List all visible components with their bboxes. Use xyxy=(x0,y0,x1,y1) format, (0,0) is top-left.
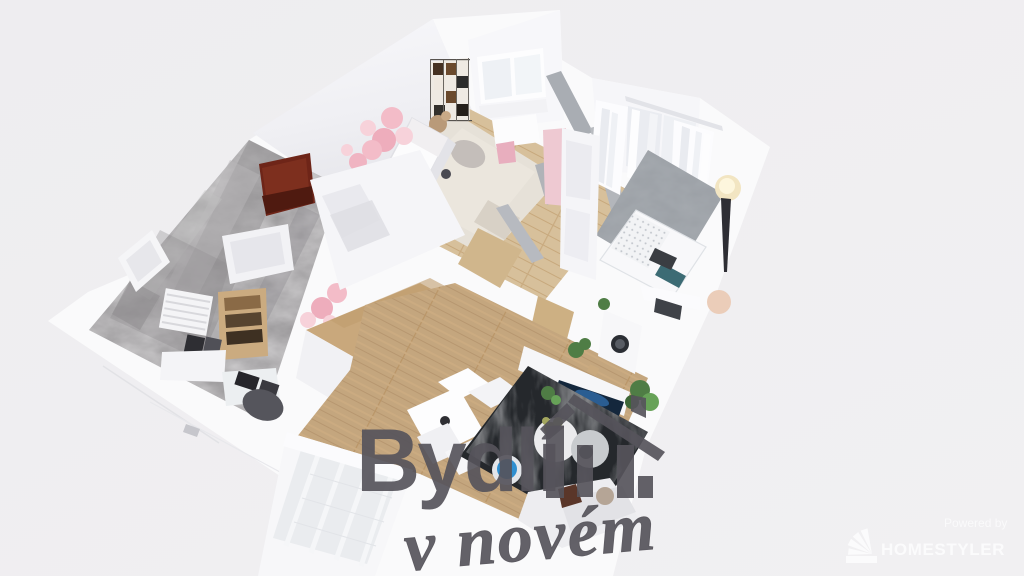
svg-text:Bydlí: Bydlí xyxy=(356,410,565,510)
svg-text:HOMESTYLER: HOMESTYLER xyxy=(881,540,1005,559)
svg-text:Powered by: Powered by xyxy=(944,516,1007,530)
